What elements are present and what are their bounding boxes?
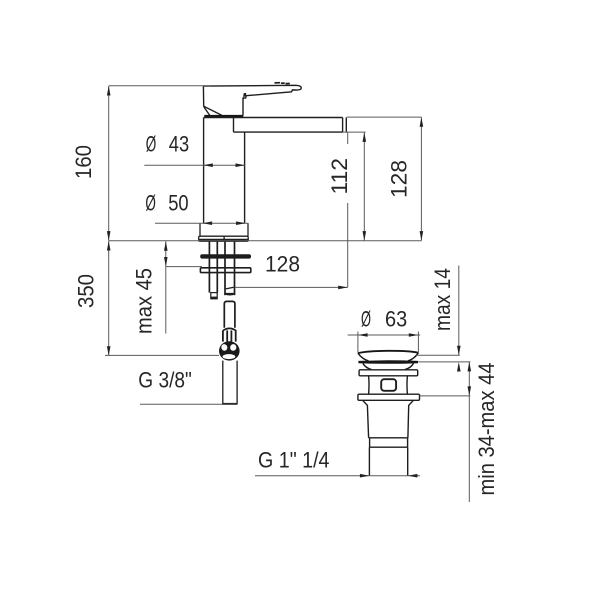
svg-text:128: 128 bbox=[387, 160, 412, 198]
svg-text:max 45: max 45 bbox=[132, 268, 157, 334]
svg-text:max 14: max 14 bbox=[430, 268, 455, 331]
svg-text:Ø: Ø bbox=[361, 306, 371, 331]
svg-text:Ø: Ø bbox=[146, 132, 157, 157]
svg-text:63: 63 bbox=[385, 306, 407, 331]
svg-text:128: 128 bbox=[265, 252, 300, 277]
svg-text:50: 50 bbox=[168, 191, 188, 216]
svg-text:112: 112 bbox=[327, 158, 352, 195]
svg-text:350: 350 bbox=[74, 274, 99, 308]
svg-text:Ø: Ø bbox=[145, 191, 156, 216]
svg-text:G 1" 1/4: G 1" 1/4 bbox=[258, 448, 330, 473]
svg-text:43: 43 bbox=[169, 132, 189, 157]
svg-text:160: 160 bbox=[71, 145, 96, 179]
svg-text:G 3/8": G 3/8" bbox=[138, 368, 192, 393]
svg-text:min 34-max 44: min 34-max 44 bbox=[474, 363, 499, 496]
